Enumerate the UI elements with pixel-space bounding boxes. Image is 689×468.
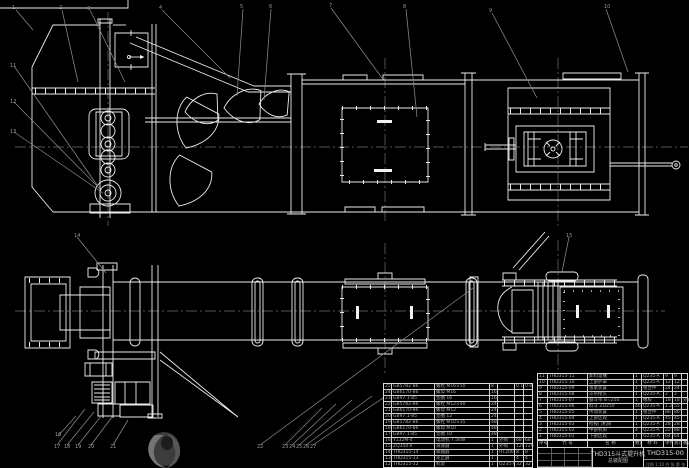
bom-cell: 46 xyxy=(634,404,642,409)
door-handle xyxy=(410,306,413,319)
bom-cell: THD315-06 xyxy=(548,404,588,409)
bom-cell: 32 xyxy=(524,462,534,467)
bom-cell: 23 xyxy=(384,396,392,401)
bom-cell: 8 xyxy=(490,384,498,389)
bom-cell xyxy=(524,408,534,413)
bom-cell: 28 xyxy=(673,422,682,427)
bom-cell: THD315-10 xyxy=(548,380,588,385)
bom-cell: 1 xyxy=(634,392,642,397)
callout-number: 19 xyxy=(75,445,81,450)
bom-cell: THD315-05 xyxy=(548,410,588,415)
bom-cell xyxy=(524,390,534,395)
bom-cell: 1 xyxy=(634,386,642,391)
bom-cell: Y132M-4 xyxy=(392,438,435,443)
bom-cell: THD315-12 xyxy=(392,462,435,467)
bom-cell xyxy=(498,456,515,461)
bom-cell: 8 xyxy=(515,450,524,455)
bom-cell: 1 xyxy=(538,434,548,439)
bom-cell xyxy=(682,386,689,391)
signature-grid xyxy=(538,448,593,467)
bom-cell: 机架 xyxy=(435,462,490,467)
bom-cell: 螺栓 M16×50 xyxy=(435,384,490,389)
bom-row: 12THD315-12机架1Q235-A3232 xyxy=(384,462,532,467)
bom-cell xyxy=(682,416,689,421)
bom-cell: 外购 xyxy=(498,438,515,443)
drawing-number-cell: THD315-00 比例 1:10 共 张 第 张 xyxy=(644,448,687,467)
bom-cell: 下部区段 xyxy=(588,434,634,439)
bom-cell: 64 xyxy=(673,434,682,439)
bom-cell: THD315-01 xyxy=(548,434,588,439)
bom-cell: 86 xyxy=(673,410,682,415)
bom-cell xyxy=(498,396,515,401)
bom-cell: 1 xyxy=(490,462,498,467)
takeup-handle xyxy=(672,161,680,169)
door-handle xyxy=(374,169,392,172)
bom-cell: 86 xyxy=(664,410,673,415)
callout-number: 22 xyxy=(257,445,263,450)
bom-cell: 18 xyxy=(664,398,673,403)
bom-cell xyxy=(515,420,524,425)
bom-cell: HT200 xyxy=(498,450,515,455)
bom-cell: 0.1 xyxy=(515,384,524,389)
bom-cell: Q235-A xyxy=(498,462,515,467)
bom-cell xyxy=(682,428,689,433)
bom-cell: THD315-02 xyxy=(548,428,588,433)
bom-cell: THD315-14 xyxy=(392,450,435,455)
bom-cell: 20 xyxy=(384,414,392,419)
bom-cell: GB6170-86 xyxy=(392,390,435,395)
bom-cell: ZQ350-Ⅱ xyxy=(392,444,435,449)
bom-cell: 1 xyxy=(490,438,498,443)
bom-cell: 逆止器 xyxy=(435,456,490,461)
bom-cell: 电动机 7.5kW xyxy=(435,438,490,443)
bom-cell: 48 xyxy=(490,426,498,431)
bom-row: 1THD315-01下部区段1Q235-A6464 xyxy=(538,434,687,439)
bom-cell: 4 xyxy=(538,416,548,421)
bom-cell: 88 xyxy=(673,428,682,433)
bom-cell: 16 xyxy=(490,390,498,395)
callout-number: 4 xyxy=(159,6,162,11)
bom-cell: 45 xyxy=(664,416,673,421)
callout-number: 6 xyxy=(269,5,272,10)
drawing-subtitle: 总装配图 xyxy=(608,458,628,464)
elevation-view xyxy=(32,19,680,218)
callout-number: 11 xyxy=(10,64,16,69)
bom-cell: 120 xyxy=(524,444,534,449)
bom-cell: Q235-A xyxy=(642,392,664,397)
bom-cell xyxy=(498,408,515,413)
bom-cell: 14 xyxy=(384,450,392,455)
bom-cell xyxy=(515,408,524,413)
bearing-symbol xyxy=(88,268,99,277)
bom-cell: 10 xyxy=(538,380,548,385)
bom-cell: THD315-08 xyxy=(548,392,588,397)
bom-cell xyxy=(682,422,689,427)
callout-number: 15 xyxy=(566,234,572,239)
bom-cell: Q235-A xyxy=(642,416,664,421)
bom-cell: 48 xyxy=(490,420,498,425)
bom-cell: 11 xyxy=(538,374,548,379)
drawing-title-cell: THD315斗式提升机 总装配图 xyxy=(593,448,644,467)
bom-cell: 上部护罩 xyxy=(588,380,634,385)
bom-cell xyxy=(515,426,524,431)
bom-cell: GB5782-86 xyxy=(392,402,435,407)
bom-cell: 传动装置 xyxy=(588,410,634,415)
bom-cell xyxy=(524,432,534,437)
bom-cell xyxy=(515,390,524,395)
bom-cell: 12 xyxy=(384,462,392,467)
bom-cell: 1 xyxy=(634,434,642,439)
bom-cell: 64 xyxy=(664,434,673,439)
drawing-number: THD315-00 xyxy=(644,448,687,460)
cover-handle xyxy=(607,305,610,318)
bom-cell: 24 xyxy=(664,386,673,391)
bom-cell: 22 xyxy=(384,402,392,407)
bom-cell xyxy=(524,420,534,425)
callout-number: 27 xyxy=(310,445,316,450)
bom-cell: Q235-A xyxy=(642,434,664,439)
bom-cell: THD315-07 xyxy=(548,398,588,403)
bom-table-right: 11THD315-11卸料溜槽1Q235-A9910THD315-10上部护罩1… xyxy=(537,373,688,440)
bom-cell: GB5782-86 xyxy=(392,420,435,425)
bom-cell: THD315-13 xyxy=(392,456,435,461)
frame-corner xyxy=(0,0,128,8)
bom-cell: 垫圈 12 xyxy=(435,414,490,419)
bom-cell: 15 xyxy=(384,444,392,449)
callout-number: 16 xyxy=(55,433,61,438)
bom-cell: 2 xyxy=(673,392,682,397)
bom-cell xyxy=(515,396,524,401)
bom-cell xyxy=(682,392,689,397)
scale-note: 比例 1:10 共 张 第 张 xyxy=(644,460,687,467)
bom-cell xyxy=(498,402,515,407)
bom-cell: 68 xyxy=(524,438,534,443)
bom-cell xyxy=(682,410,689,415)
bom-cell: 16 xyxy=(384,438,392,443)
bom-cell: THD315-04 xyxy=(548,416,588,421)
bom-cell: Q235-A xyxy=(642,380,664,385)
bom-cell: 3 xyxy=(538,422,548,427)
bom-cell: 5 xyxy=(538,410,548,415)
bom-cell xyxy=(682,374,689,379)
bom-cell xyxy=(498,432,515,437)
bom-cell: 120 xyxy=(515,444,524,449)
bom-cell: 48 xyxy=(490,432,498,437)
bom-cell: 畚斗带 B=250 xyxy=(588,398,634,403)
bom-cell: 1 xyxy=(634,398,642,403)
callout-number: 17 xyxy=(54,445,60,450)
bom-cell: Q235-A xyxy=(642,428,664,433)
bom-cell: 18 xyxy=(384,426,392,431)
bom-cell xyxy=(524,426,534,431)
plan-inspection-door xyxy=(342,273,428,354)
bom-cell: 2 xyxy=(664,392,673,397)
bom-cell xyxy=(682,380,689,385)
bom-cell: 19 xyxy=(384,420,392,425)
bom-cell: 中部机筒 xyxy=(588,428,634,433)
bom-cell: 螺母 M10 xyxy=(435,426,490,431)
callout-number: 23 xyxy=(282,445,288,450)
bom-cell: 组合件 xyxy=(642,386,664,391)
bom-cell xyxy=(498,390,515,395)
bom-cell: 13 xyxy=(384,456,392,461)
bom-cell xyxy=(524,402,534,407)
bom-cell: 68 xyxy=(515,438,524,443)
title-block: THD315斗式提升机 总装配图 THD315-00 比例 1:10 共 张 第… xyxy=(537,447,688,468)
bom-cell: 联轴器 xyxy=(435,450,490,455)
bom-cell: 1 xyxy=(634,374,642,379)
takeup-tensioner xyxy=(485,126,680,172)
bom-cell: Q235-A xyxy=(642,422,664,427)
callout-number: 1 xyxy=(12,6,15,11)
bom-cell xyxy=(524,396,534,401)
bom-cell: 4 xyxy=(515,456,524,461)
bom-cell: 45 xyxy=(673,416,682,421)
callout-number: 8 xyxy=(403,5,406,10)
bom-cell: 1 xyxy=(490,444,498,449)
bom-cell xyxy=(498,420,515,425)
bom-cell: 22 xyxy=(664,428,673,433)
bom-cell: GB97.1-85 xyxy=(392,396,435,401)
bom-cell: THD315-09 xyxy=(548,386,588,391)
bom-cell: 1 xyxy=(634,416,642,421)
bom-cell: 橡胶 xyxy=(642,398,664,403)
bom-cell: GB6170-86 xyxy=(392,426,435,431)
callout-number: 10 xyxy=(604,5,610,10)
bom-cell: Q235-A xyxy=(642,374,664,379)
bom-cell: GB5782-86 xyxy=(392,384,435,389)
bom-cell xyxy=(515,402,524,407)
bom-cell: 1 xyxy=(490,450,498,455)
boot-section-front xyxy=(461,73,680,215)
bom-cell xyxy=(524,414,534,419)
bom-cell: 1.2 xyxy=(664,404,673,409)
bom-cell: 21 xyxy=(384,408,392,413)
plan-drive-unit xyxy=(85,265,238,418)
cad-drawing-canvas: 1234567891011121314151617181920212223242… xyxy=(0,0,689,468)
bom-cell: 料斗 ZD250 xyxy=(588,404,634,409)
bom-cell: 9 xyxy=(538,386,548,391)
bom-cell: 垫圈 16 xyxy=(435,396,490,401)
bom-cell: 32 xyxy=(515,462,524,467)
bom-cell: 9 xyxy=(664,374,673,379)
callout-number: 9 xyxy=(489,9,492,14)
detail-marker-box xyxy=(115,30,148,70)
bom-cell: Q235-A xyxy=(642,404,664,409)
bom-cell: 螺母 M16 xyxy=(435,390,490,395)
bom-table-left: 25GB5782-86螺栓 M16×5080.10.824GB6170-86螺母… xyxy=(383,383,533,468)
brace xyxy=(160,352,238,417)
bom-cell: GB97.1-85 xyxy=(392,414,435,419)
bom-cell: 8 xyxy=(538,392,548,397)
bom-cell: 张紧装置 xyxy=(588,386,634,391)
bom-cell: 外购 xyxy=(682,398,689,403)
bom-cell: 25 xyxy=(384,384,392,389)
drawing-title: THD315斗式提升机 xyxy=(591,451,645,458)
bom-cell xyxy=(498,384,515,389)
bom-cell: 检视门机筒 xyxy=(588,422,634,427)
bom-cell: 斗带接头 xyxy=(588,392,634,397)
callout-number: 14 xyxy=(74,234,80,239)
bom-cell: 0.8 xyxy=(524,384,534,389)
bom-cell: 28 xyxy=(664,422,673,427)
bom-cell: 24 xyxy=(673,386,682,391)
bom-cell: 1 xyxy=(490,456,498,461)
callout-number: 13 xyxy=(10,130,16,135)
buckets xyxy=(164,87,293,212)
bom-cell: 16 xyxy=(490,396,498,401)
bom-cell: THD315-11 xyxy=(548,374,588,379)
bom-cell: 17 xyxy=(384,432,392,437)
bom-cell: 24 xyxy=(490,408,498,413)
bom-cell: 减速器 xyxy=(435,444,490,449)
door-handle xyxy=(377,120,392,123)
bom-cell: 1 xyxy=(634,380,642,385)
inlet-chute xyxy=(130,37,294,211)
bolted-cover-plate xyxy=(560,287,623,340)
callout-number: 20 xyxy=(88,445,94,450)
bom-cell: 6 xyxy=(538,404,548,409)
bom-cell xyxy=(515,414,524,419)
plan-head-section xyxy=(25,263,117,418)
gearbox xyxy=(115,382,153,417)
callout-number: 3 xyxy=(87,7,90,12)
cover-handle xyxy=(576,305,579,318)
bom-cell: 垫圈 10 xyxy=(435,432,490,437)
callout-number: 26 xyxy=(303,445,309,450)
bom-cell: 螺母 M12 xyxy=(435,408,490,413)
bom-cell: 2 xyxy=(538,428,548,433)
motor xyxy=(92,382,120,416)
bom-cell: 螺栓 M12×40 xyxy=(435,402,490,407)
bom-cell xyxy=(498,414,515,419)
bom-cell: 24 xyxy=(384,390,392,395)
bom-cell: 4 xyxy=(634,428,642,433)
bom-cell: 1 xyxy=(634,422,642,427)
callout-number: 12 xyxy=(10,100,16,105)
bom-cell: 12 xyxy=(664,380,673,385)
callout-number: 2 xyxy=(59,6,62,11)
bom-cell: 7 xyxy=(538,398,548,403)
bom-cell: 外购 xyxy=(498,444,515,449)
callout-number: 21 xyxy=(110,445,116,450)
leader-lines xyxy=(14,8,628,445)
bom-cell xyxy=(682,404,689,409)
boot-section-side xyxy=(32,19,639,218)
bom-cell: 卸料溜槽 xyxy=(588,374,634,379)
bom-cell: GB97.1-85 xyxy=(392,432,435,437)
callout-number: 25 xyxy=(296,445,302,450)
bom-cell: 1 xyxy=(634,410,642,415)
bom-cell: GB6170-86 xyxy=(392,408,435,413)
callout-number: 24 xyxy=(289,445,295,450)
bom-cell: 8 xyxy=(524,450,534,455)
bom-cell xyxy=(498,426,515,431)
bom-cell: 螺栓 M10×35 xyxy=(435,420,490,425)
bom-cell: 24 xyxy=(490,414,498,419)
stamp-blob xyxy=(148,432,180,468)
bom-cell: 上部区段 xyxy=(588,416,634,421)
bom-cell xyxy=(515,432,524,437)
bearing-symbol xyxy=(88,350,99,359)
door-handle xyxy=(356,306,359,319)
bom-cell: 18 xyxy=(673,398,682,403)
bom-cell: 24 xyxy=(490,402,498,407)
bom-cell: 4 xyxy=(524,456,534,461)
bom-cell: 12 xyxy=(673,380,682,385)
callout-number: 18 xyxy=(64,445,70,450)
bom-cell: 55 xyxy=(673,404,682,409)
callout-number: 5 xyxy=(240,5,243,10)
bom-cell: 组合件 xyxy=(642,410,664,415)
callout-number: 7 xyxy=(329,4,332,9)
bom-cell: 9 xyxy=(673,374,682,379)
bom-cell xyxy=(682,434,689,439)
bom-cell: THD315-03 xyxy=(548,422,588,427)
